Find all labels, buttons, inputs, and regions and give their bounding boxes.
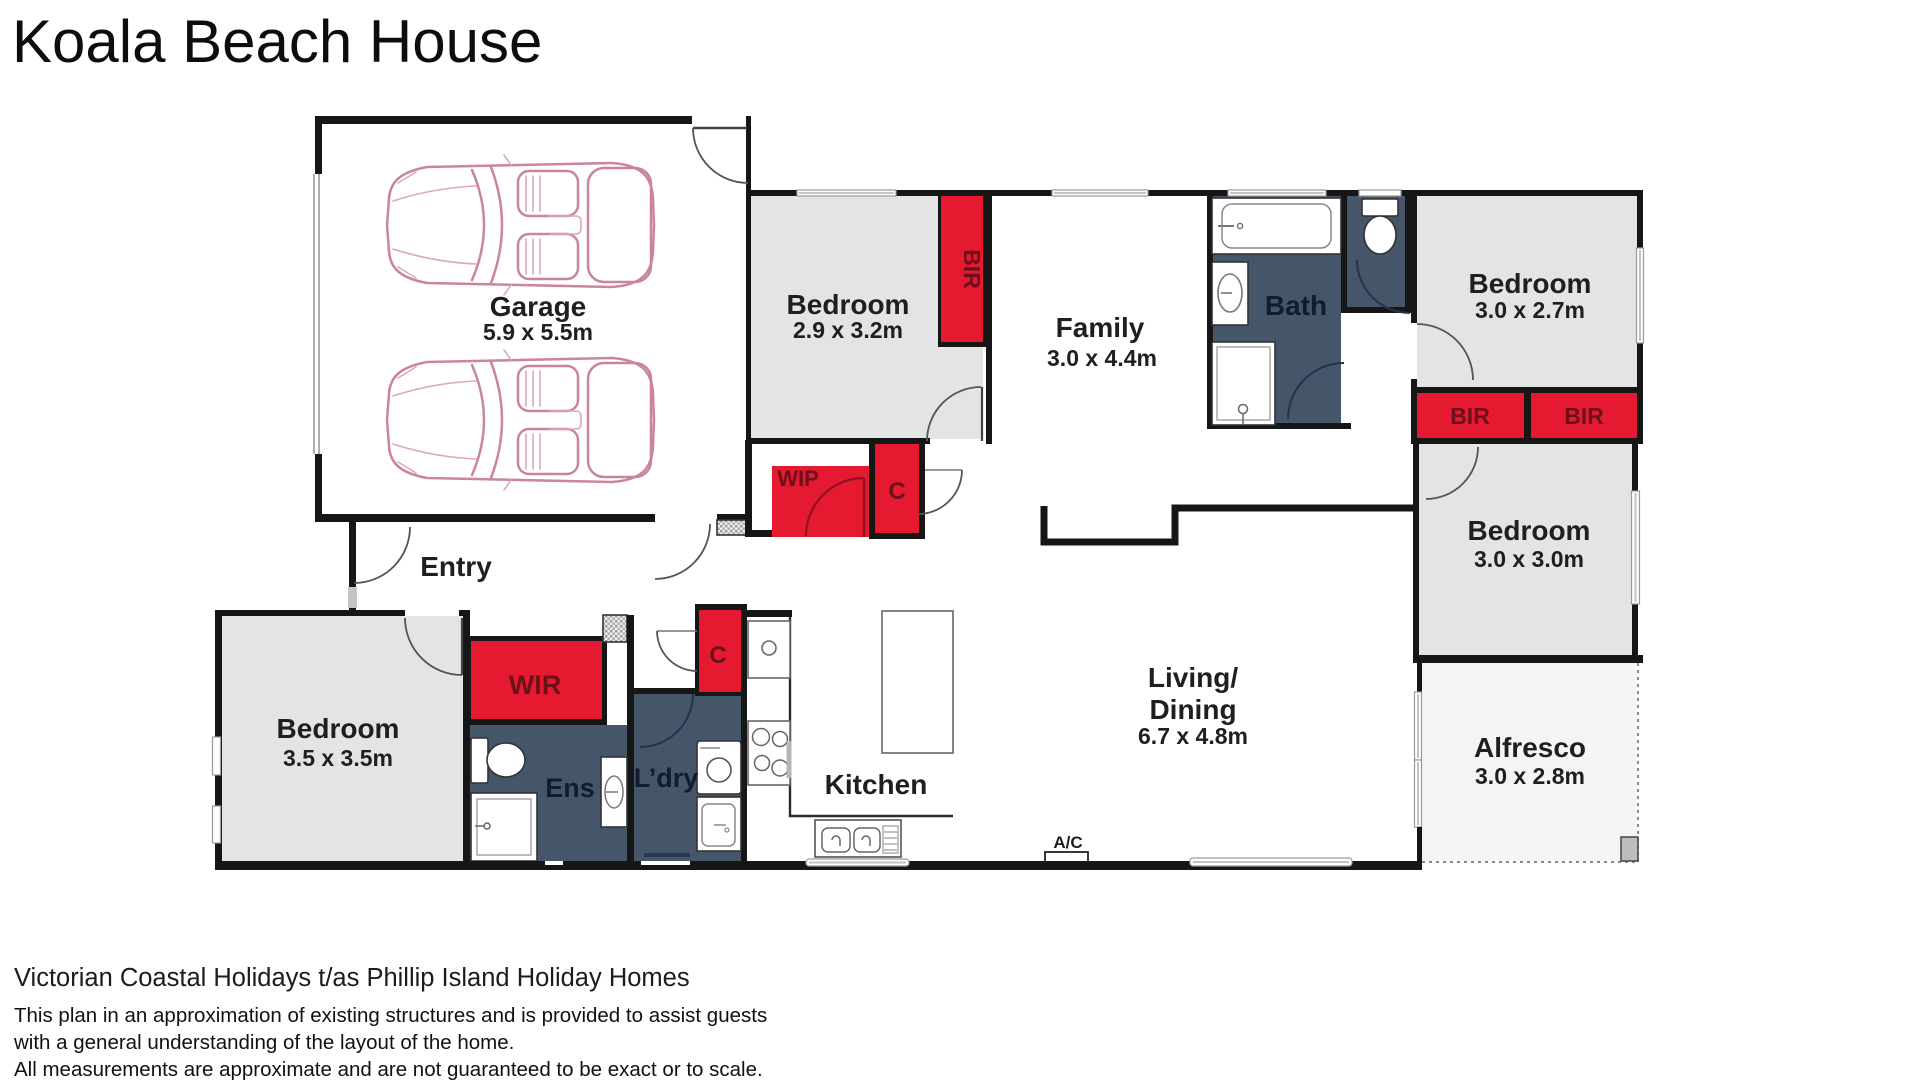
svg-text:3.5 x 3.5m: 3.5 x 3.5m [283,745,393,771]
svg-text:Dining: Dining [1149,694,1236,725]
svg-text:BIR: BIR [1564,403,1604,429]
svg-text:2.9 x 3.2m: 2.9 x 3.2m [793,317,903,343]
svg-text:Bedroom: Bedroom [277,713,400,744]
svg-text:Family: Family [1056,312,1145,343]
svg-text:5.9 x 5.5m: 5.9 x 5.5m [483,319,593,345]
svg-text:Ens: Ens [545,773,595,803]
svg-text:Bath: Bath [1265,290,1327,321]
svg-text:3.0 x 2.7m: 3.0 x 2.7m [1475,297,1585,323]
svg-text:6.7 x 4.8m: 6.7 x 4.8m [1138,723,1248,749]
svg-text:WIP: WIP [777,466,819,491]
svg-text:Garage: Garage [490,291,587,322]
svg-text:Kitchen: Kitchen [825,769,928,800]
svg-text:Victorian Coastal Holidays t/a: Victorian Coastal Holidays t/as Phillip … [14,964,690,992]
svg-text:BIR: BIR [959,249,985,289]
svg-text:Bedroom: Bedroom [787,289,910,320]
svg-text:C: C [888,478,905,505]
svg-text:Alfresco: Alfresco [1474,732,1586,763]
svg-text:C: C [709,642,726,669]
svg-text:3.0 x 4.4m: 3.0 x 4.4m [1047,345,1157,371]
svg-text:WIR: WIR [509,670,561,700]
svg-text:This plan in an approximation: This plan in an approximation of existin… [14,1004,767,1027]
svg-text:L’dry: L’dry [634,763,699,793]
svg-text:A/C: A/C [1053,833,1082,852]
svg-text:Bedroom: Bedroom [1468,515,1591,546]
svg-text:3.0 x 2.8m: 3.0 x 2.8m [1475,763,1585,789]
svg-text:Living/: Living/ [1148,662,1238,693]
svg-text:BIR: BIR [1450,403,1490,429]
svg-text:with a general understanding o: with a general understanding of the layo… [13,1031,514,1054]
svg-text:All measurements are approxima: All measurements are approximate and are… [14,1058,763,1080]
svg-text:Koala Beach House: Koala Beach House [12,8,542,75]
svg-text:Bedroom: Bedroom [1469,268,1592,299]
svg-text:3.0 x 3.0m: 3.0 x 3.0m [1474,546,1584,572]
svg-text:Entry: Entry [420,551,492,582]
